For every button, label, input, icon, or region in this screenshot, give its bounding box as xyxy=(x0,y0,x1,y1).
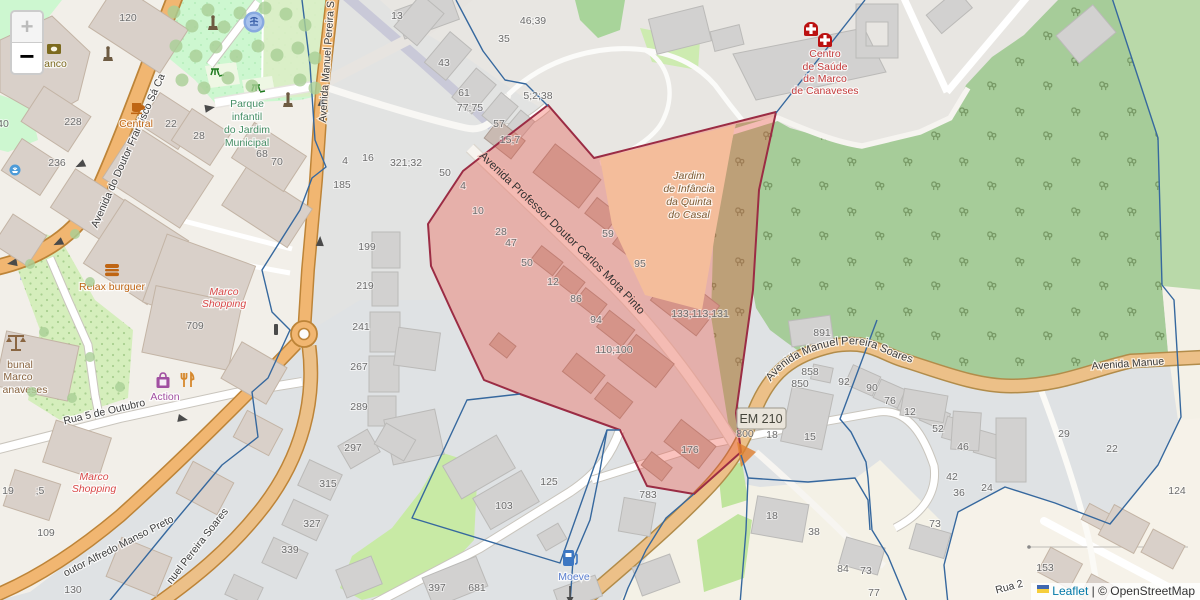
svg-text:47: 47 xyxy=(505,237,517,249)
svg-text:103: 103 xyxy=(495,500,513,512)
svg-text:40: 40 xyxy=(0,118,9,130)
svg-text:Municipal: Municipal xyxy=(225,137,269,149)
svg-text:10: 10 xyxy=(472,205,484,217)
svg-text:36: 36 xyxy=(953,487,965,499)
svg-text:de Marco: de Marco xyxy=(803,73,847,85)
svg-text:61: 61 xyxy=(458,87,470,99)
svg-text:297: 297 xyxy=(344,442,362,454)
svg-text:124: 124 xyxy=(1168,485,1186,497)
svg-text:110;100: 110;100 xyxy=(595,344,632,356)
svg-text:Marco: Marco xyxy=(209,286,238,298)
svg-text:28: 28 xyxy=(193,130,205,142)
svg-text:219: 219 xyxy=(356,280,374,292)
svg-text:327: 327 xyxy=(303,518,321,530)
svg-text:199: 199 xyxy=(358,241,376,253)
svg-text:73: 73 xyxy=(929,518,941,530)
svg-text:86: 86 xyxy=(570,293,582,305)
svg-text:241: 241 xyxy=(352,321,370,333)
svg-text:76: 76 xyxy=(884,395,896,407)
svg-text:321;32: 321;32 xyxy=(390,157,422,169)
svg-text:22: 22 xyxy=(1106,443,1118,455)
svg-text:46;39: 46;39 xyxy=(520,15,546,27)
svg-text:176: 176 xyxy=(681,444,699,456)
svg-text:22: 22 xyxy=(165,118,177,130)
svg-text:Shopping: Shopping xyxy=(72,483,117,495)
svg-text:95: 95 xyxy=(634,258,646,270)
svg-text:Parque: Parque xyxy=(230,98,264,110)
svg-text:13: 13 xyxy=(391,10,403,22)
svg-text:289: 289 xyxy=(350,401,368,413)
svg-text:709: 709 xyxy=(186,320,204,332)
svg-text:339: 339 xyxy=(281,544,299,556)
svg-text:59: 59 xyxy=(602,228,614,240)
svg-text:57: 57 xyxy=(493,118,505,130)
svg-text:228: 228 xyxy=(64,116,82,128)
svg-text:12: 12 xyxy=(547,276,559,288)
svg-text:bunal: bunal xyxy=(7,359,33,371)
svg-text:Marco: Marco xyxy=(3,371,32,383)
svg-text:783: 783 xyxy=(639,489,657,501)
svg-text:681: 681 xyxy=(468,582,486,594)
svg-text:Shopping: Shopping xyxy=(202,298,247,310)
svg-text:92: 92 xyxy=(838,376,850,388)
svg-text:77: 77 xyxy=(868,587,880,599)
svg-text:Jardim: Jardim xyxy=(672,170,705,182)
svg-text:397: 397 xyxy=(428,582,446,594)
svg-text:68: 68 xyxy=(256,148,268,160)
svg-text:Action: Action xyxy=(150,391,179,403)
svg-text:4: 4 xyxy=(460,180,466,192)
svg-text:Moeve: Moeve xyxy=(558,571,590,583)
svg-text:anaveses: anaveses xyxy=(3,384,48,396)
svg-text:5;2;38: 5;2;38 xyxy=(523,90,552,102)
svg-text:Centro: Centro xyxy=(809,48,841,60)
svg-text:94: 94 xyxy=(590,314,602,326)
svg-text:73: 73 xyxy=(860,565,872,577)
svg-text:267: 267 xyxy=(350,361,368,373)
svg-text:46: 46 xyxy=(957,441,969,453)
svg-text:EM 210: EM 210 xyxy=(739,412,782,426)
svg-text:15: 15 xyxy=(804,431,816,443)
svg-text:4: 4 xyxy=(342,155,348,167)
svg-text:;5: ;5 xyxy=(36,485,45,497)
svg-text:de Canaveses: de Canaveses xyxy=(791,85,858,97)
svg-text:35: 35 xyxy=(498,33,510,45)
svg-text:38: 38 xyxy=(808,526,820,538)
svg-text:800: 800 xyxy=(736,428,754,440)
svg-text:19: 19 xyxy=(2,485,14,497)
svg-text:da Quinta: da Quinta xyxy=(666,196,712,208)
svg-text:de Infância: de Infância xyxy=(663,183,715,195)
svg-text:Marco: Marco xyxy=(79,471,108,483)
svg-text:18: 18 xyxy=(766,429,778,441)
svg-text:70: 70 xyxy=(271,156,283,168)
svg-text:24: 24 xyxy=(981,482,993,494)
svg-text:de Saúde: de Saúde xyxy=(803,61,848,73)
svg-text:50: 50 xyxy=(439,167,451,179)
svg-text:858: 858 xyxy=(801,366,819,378)
svg-text:120: 120 xyxy=(119,12,137,24)
svg-text:130: 130 xyxy=(64,584,82,596)
svg-text:29: 29 xyxy=(1058,428,1070,440)
svg-text:42: 42 xyxy=(946,471,958,483)
svg-text:12: 12 xyxy=(904,406,916,418)
svg-text:52: 52 xyxy=(932,423,944,435)
svg-text:109: 109 xyxy=(37,527,55,539)
svg-text:125: 125 xyxy=(540,476,558,488)
svg-text:850: 850 xyxy=(791,378,809,390)
svg-text:do Casal: do Casal xyxy=(668,209,710,221)
svg-text:84: 84 xyxy=(837,563,849,575)
svg-text:185: 185 xyxy=(333,179,351,191)
svg-text:133;113;131: 133;113;131 xyxy=(671,308,729,320)
svg-text:90: 90 xyxy=(866,382,878,394)
svg-text:50: 50 xyxy=(521,257,533,269)
svg-text:15;7: 15;7 xyxy=(500,134,521,146)
svg-text:153: 153 xyxy=(1036,562,1054,574)
svg-text:do Jardim: do Jardim xyxy=(224,124,270,136)
svg-text:infantil: infantil xyxy=(232,111,262,123)
svg-text:16: 16 xyxy=(362,152,374,164)
svg-text:891: 891 xyxy=(813,327,831,339)
svg-text:77;75: 77;75 xyxy=(457,102,483,114)
svg-text:236: 236 xyxy=(48,157,66,169)
svg-text:18: 18 xyxy=(766,510,778,522)
svg-text:315: 315 xyxy=(319,478,337,490)
svg-text:Central: Central xyxy=(119,118,153,130)
svg-text:43: 43 xyxy=(438,57,450,69)
